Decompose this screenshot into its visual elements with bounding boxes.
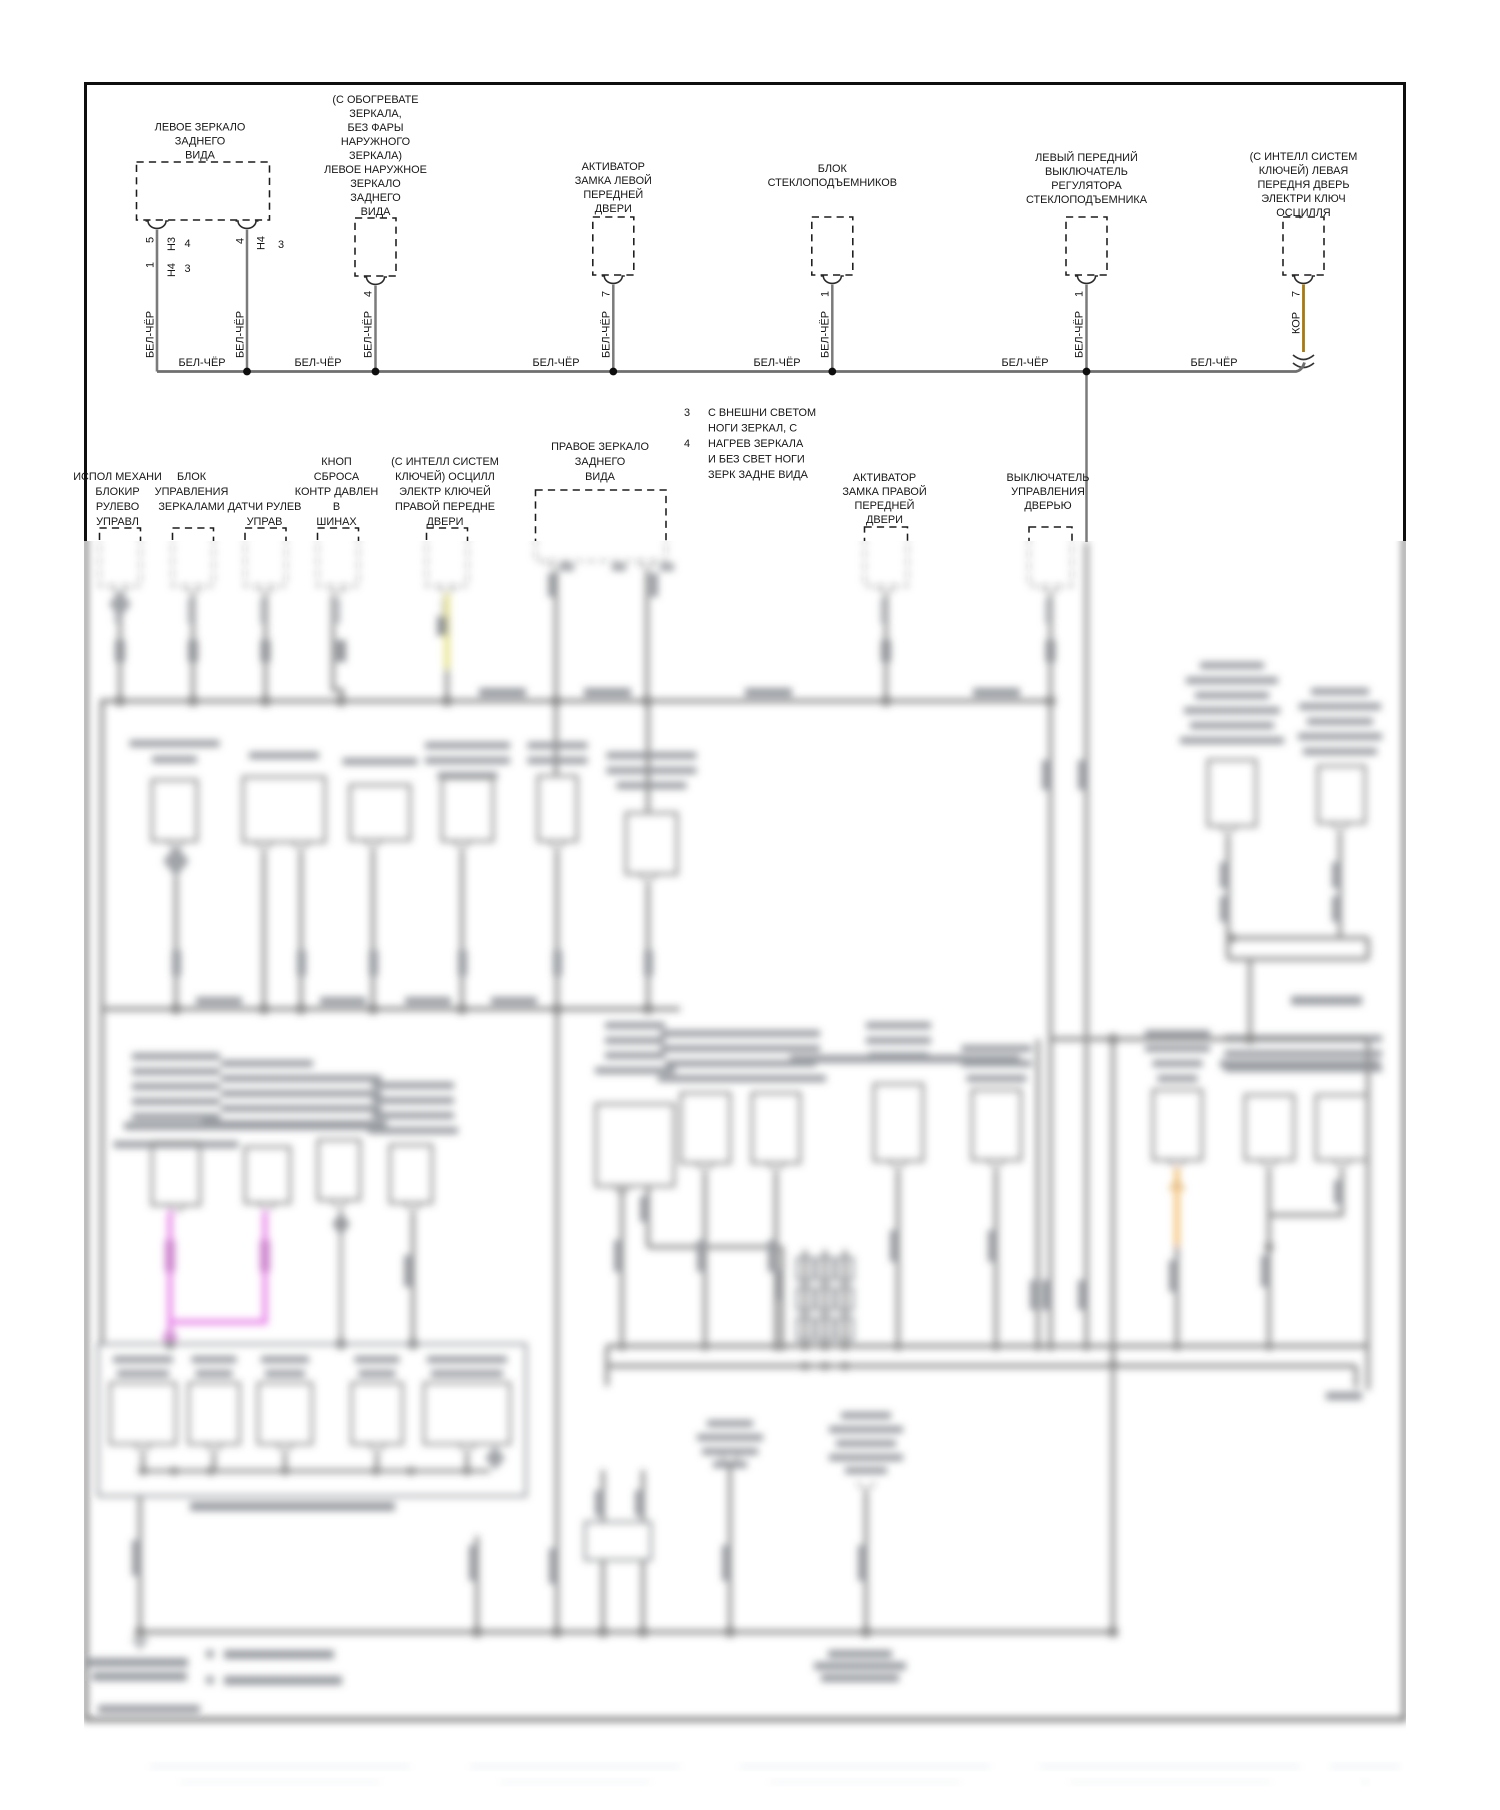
svg-text:УПРАВ: УПРАВ xyxy=(247,516,283,528)
svg-text:БЕЛ-ЧЁР: БЕЛ-ЧЁР xyxy=(1002,357,1049,369)
svg-text:БЕЛ-ЧЁР: БЕЛ-ЧЁР xyxy=(1074,311,1086,358)
svg-text:ВЫКЛЮЧАТЕЛЬ: ВЫКЛЮЧАТЕЛЬ xyxy=(1007,472,1090,484)
svg-text:4: 4 xyxy=(363,291,375,297)
svg-text:НОГИ ЗЕРКАЛ, С: НОГИ ЗЕРКАЛ, С xyxy=(708,423,797,435)
svg-text:ШИНАХ: ШИНАХ xyxy=(316,516,357,528)
svg-text:ЗЕРКАЛА): ЗЕРКАЛА) xyxy=(349,150,402,162)
svg-text:(С ОБОГРЕВАТЕ: (С ОБОГРЕВАТЕ xyxy=(332,94,418,106)
svg-text:1: 1 xyxy=(1074,291,1086,297)
svg-text:В: В xyxy=(333,501,340,513)
svg-text:БЕЛ-ЧЁР: БЕЛ-ЧЁР xyxy=(363,311,375,358)
svg-text:ВИДА: ВИДА xyxy=(185,150,215,162)
svg-text:БЕЛ-ЧЁР: БЕЛ-ЧЁР xyxy=(1191,357,1238,369)
svg-text:БЛОК: БЛОК xyxy=(818,163,848,175)
svg-text:ЛЕВЫЙ ПЕРЕДНИЙ: ЛЕВЫЙ ПЕРЕДНИЙ xyxy=(1035,151,1138,164)
svg-text:БЕЛ-ЧЁР: БЕЛ-ЧЁР xyxy=(179,357,226,369)
svg-text:7: 7 xyxy=(600,291,612,297)
svg-text:КЛЮЧЕЙ) ЛЕВАЯ: КЛЮЧЕЙ) ЛЕВАЯ xyxy=(1259,164,1349,177)
svg-text:(С ИНТЕЛЛ СИСТЕМ: (С ИНТЕЛЛ СИСТЕМ xyxy=(391,456,499,468)
svg-text:КОНТР ДАВЛЕН: КОНТР ДАВЛЕН xyxy=(295,486,379,498)
svg-text:ВЫКЛЮЧАТЕЛЬ: ВЫКЛЮЧАТЕЛЬ xyxy=(1045,166,1128,178)
svg-text:ЗАМКА ПРАВОЙ: ЗАМКА ПРАВОЙ xyxy=(842,485,926,498)
svg-text:КОР: КОР xyxy=(1291,312,1303,334)
svg-text:ЗЕРК ЗАДНЕ ВИДА: ЗЕРК ЗАДНЕ ВИДА xyxy=(708,469,809,481)
svg-text:ВИДА: ВИДА xyxy=(361,206,391,218)
svg-text:ЗЕРКАЛА,: ЗЕРКАЛА, xyxy=(349,108,401,120)
svg-text:Н3: Н3 xyxy=(166,237,178,251)
svg-text:ПЕРЕДНЯ ДВЕРЬ: ПЕРЕДНЯ ДВЕРЬ xyxy=(1257,179,1349,191)
svg-text:СТЕКЛОПОДЪЕМНИКОВ: СТЕКЛОПОДЪЕМНИКОВ xyxy=(768,177,897,189)
svg-text:УПРАВЛЕНИЯ: УПРАВЛЕНИЯ xyxy=(155,486,229,498)
svg-text:ИСПОЛ МЕХАНИ: ИСПОЛ МЕХАНИ xyxy=(73,471,162,483)
svg-text:БЕЛ-ЧЁР: БЕЛ-ЧЁР xyxy=(145,311,157,358)
svg-text:БЕЗ ФАРЫ: БЕЗ ФАРЫ xyxy=(348,122,404,134)
svg-text:АКТИВАТОР: АКТИВАТОР xyxy=(582,161,645,173)
svg-text:ДВЕРИ: ДВЕРИ xyxy=(427,516,464,528)
svg-text:5: 5 xyxy=(145,237,157,243)
svg-text:4: 4 xyxy=(185,238,191,250)
svg-text:ПЕРЕДНЕЙ: ПЕРЕДНЕЙ xyxy=(583,188,643,201)
svg-text:3: 3 xyxy=(684,407,690,419)
svg-text:СТЕКЛОПОДЪЕМНИКА: СТЕКЛОПОДЪЕМНИКА xyxy=(1026,194,1148,206)
svg-text:4: 4 xyxy=(235,238,247,244)
svg-text:ЗАМКА ЛЕВОЙ: ЗАМКА ЛЕВОЙ xyxy=(575,174,652,187)
svg-text:ВИДА: ВИДА xyxy=(585,471,615,483)
svg-text:БЕЛ-ЧЁР: БЕЛ-ЧЁР xyxy=(819,311,831,358)
svg-text:БЕЛ-ЧЁР: БЕЛ-ЧЁР xyxy=(600,311,612,358)
svg-text:РУЛЕВО: РУЛЕВО xyxy=(96,501,139,513)
svg-text:КНОП: КНОП xyxy=(321,456,352,468)
svg-text:ПРАВОЙ ПЕРЕДНЕ: ПРАВОЙ ПЕРЕДНЕ xyxy=(395,500,495,513)
svg-text:ЛЕВОЕ НАРУЖНОЕ: ЛЕВОЕ НАРУЖНОЕ xyxy=(324,164,427,176)
svg-text:ДАТЧИ РУЛЕВ: ДАТЧИ РУЛЕВ xyxy=(228,501,302,513)
svg-text:НАГРЕВ ЗЕРКАЛА: НАГРЕВ ЗЕРКАЛА xyxy=(708,438,804,450)
svg-text:БЕЛ-ЧЁР: БЕЛ-ЧЁР xyxy=(533,357,580,369)
svg-text:7: 7 xyxy=(1291,291,1303,297)
svg-text:УПРАВЛЕНИЯ: УПРАВЛЕНИЯ xyxy=(1011,486,1085,498)
svg-text:БЛОКИР: БЛОКИР xyxy=(95,486,139,498)
svg-text:4: 4 xyxy=(684,438,690,450)
svg-text:БЛОК: БЛОК xyxy=(177,471,207,483)
svg-text:С ВНЕШНИ СВЕТОМ: С ВНЕШНИ СВЕТОМ xyxy=(708,407,816,419)
svg-text:Н4: Н4 xyxy=(166,263,178,277)
svg-text:ДВЕРЬЮ: ДВЕРЬЮ xyxy=(1024,500,1071,512)
svg-text:3: 3 xyxy=(278,239,284,251)
svg-text:НАРУЖНОГО: НАРУЖНОГО xyxy=(341,136,410,148)
svg-text:(С ИНТЕЛЛ СИСТЕМ: (С ИНТЕЛЛ СИСТЕМ xyxy=(1250,151,1358,163)
svg-text:АКТИВАТОР: АКТИВАТОР xyxy=(853,472,916,484)
svg-text:3: 3 xyxy=(185,263,191,275)
svg-text:ДВЕРИ: ДВЕРИ xyxy=(595,203,632,215)
svg-text:БЕЛ-ЧЁР: БЕЛ-ЧЁР xyxy=(754,357,801,369)
svg-text:И БЕЗ СВЕТ НОГИ: И БЕЗ СВЕТ НОГИ xyxy=(708,454,805,466)
svg-text:ЗАДНЕГО: ЗАДНЕГО xyxy=(175,136,225,148)
svg-text:ПЕРЕДНЕЙ: ПЕРЕДНЕЙ xyxy=(855,499,915,512)
svg-text:ЗЕРКАЛО: ЗЕРКАЛО xyxy=(350,178,401,190)
svg-text:УПРАВЛ: УПРАВЛ xyxy=(96,516,139,528)
svg-text:ЛЕВОЕ ЗЕРКАЛО: ЛЕВОЕ ЗЕРКАЛО xyxy=(155,122,246,134)
svg-text:СБРОСА: СБРОСА xyxy=(314,471,360,483)
svg-text:ЭЛЕКТР КЛЮЧЕЙ: ЭЛЕКТР КЛЮЧЕЙ xyxy=(399,485,491,498)
svg-text:РЕГУЛЯТОРА: РЕГУЛЯТОРА xyxy=(1051,180,1122,192)
svg-text:1: 1 xyxy=(819,291,831,297)
svg-text:ЗЕРКАЛАМИ: ЗЕРКАЛАМИ xyxy=(158,501,224,513)
svg-text:1: 1 xyxy=(145,262,157,268)
svg-text:ПРАВОЕ ЗЕРКАЛО: ПРАВОЕ ЗЕРКАЛО xyxy=(551,441,649,453)
svg-text:КЛЮЧЕЙ) ОСЦИЛЛ: КЛЮЧЕЙ) ОСЦИЛЛ xyxy=(395,470,495,483)
svg-text:Н4: Н4 xyxy=(256,236,268,250)
svg-text:ЗАДНЕГО: ЗАДНЕГО xyxy=(575,456,625,468)
svg-text:БЕЛ-ЧЁР: БЕЛ-ЧЁР xyxy=(235,311,247,358)
svg-text:ЗАДНЕГО: ЗАДНЕГО xyxy=(350,192,400,204)
svg-text:ЭЛЕКТРИ КЛЮЧ: ЭЛЕКТРИ КЛЮЧ xyxy=(1261,193,1345,205)
svg-text:БЕЛ-ЧЁР: БЕЛ-ЧЁР xyxy=(295,357,342,369)
svg-text:ДВЕРИ: ДВЕРИ xyxy=(866,514,903,526)
